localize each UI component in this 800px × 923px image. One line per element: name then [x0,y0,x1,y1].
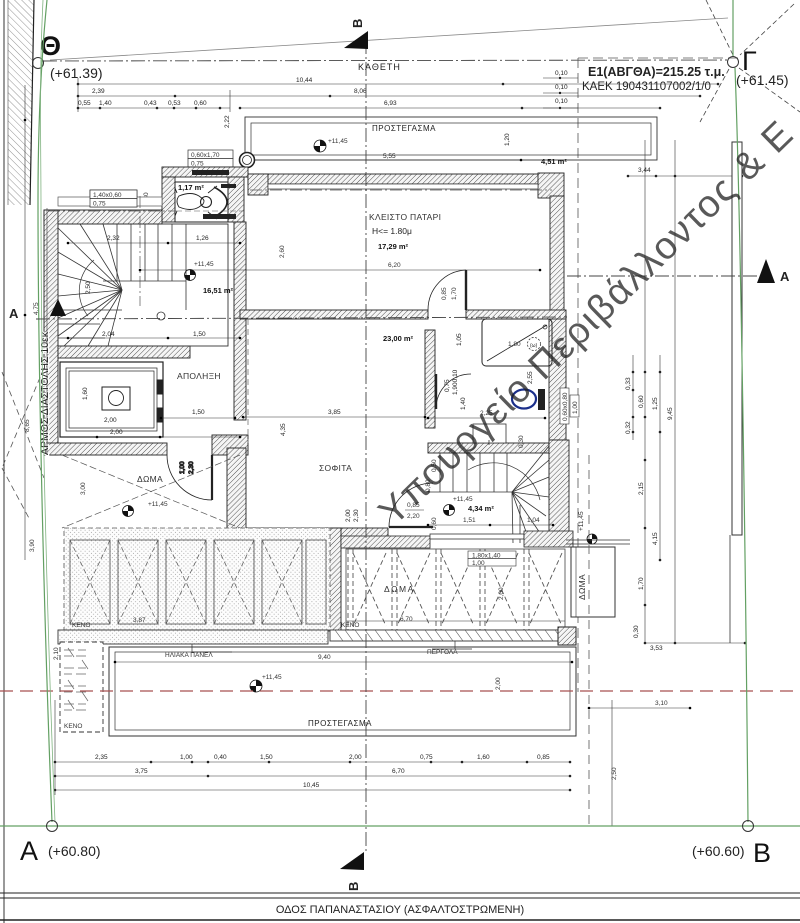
svg-text:0,53: 0,53 [168,100,181,107]
svg-text:0,75: 0,75 [420,754,433,761]
svg-text:1,40x0,60: 1,40x0,60 [93,192,122,199]
svg-text:1,80: 1,80 [508,341,521,348]
svg-text:ΚΕΝΟ: ΚΕΝΟ [72,622,90,629]
svg-text:3,44: 3,44 [638,167,651,174]
svg-text:1,17 m²: 1,17 m² [178,183,204,192]
svg-text:2,15: 2,15 [638,482,645,495]
svg-text:1,50: 1,50 [260,754,273,761]
svg-text:1,900,10: 1,900,10 [452,369,459,395]
svg-text:0,10: 0,10 [555,70,568,77]
svg-text:0,43: 0,43 [144,100,157,107]
svg-text:2,00: 2,00 [104,417,117,424]
svg-text:2,35: 2,35 [95,754,108,761]
svg-text:1,26: 1,26 [196,235,209,242]
svg-text:1,51: 1,51 [463,517,476,524]
svg-text:ΚΕΝΟ: ΚΕΝΟ [341,622,359,629]
svg-text:ΠΕΡΓΟΛΑ: ΠΕΡΓΟΛΑ [427,649,458,656]
svg-text:B: B [346,882,361,891]
svg-text:2,50: 2,50 [611,767,618,780]
svg-text:2,04: 2,04 [102,331,115,338]
svg-text:1,40: 1,40 [99,100,112,107]
svg-text:8,06: 8,06 [354,88,367,95]
svg-text:1,50: 1,50 [193,331,206,338]
svg-text:1,00: 1,00 [572,401,579,414]
svg-text:3,85: 3,85 [328,409,341,416]
svg-text:B: B [753,838,771,868]
svg-text:4,34 m²: 4,34 m² [468,504,494,513]
svg-text:9,45: 9,45 [667,407,674,420]
svg-text:ΔΩΜΑ: ΔΩΜΑ [137,474,163,484]
svg-text:0,60x0,80: 0,60x0,80 [562,392,569,421]
svg-text:10,45: 10,45 [303,782,320,789]
svg-text:1,25: 1,25 [652,397,659,410]
svg-text:4,15: 4,15 [652,532,659,545]
svg-text:0,30: 0,30 [633,625,640,638]
svg-text:0,55: 0,55 [78,100,91,107]
svg-text:A: A [9,306,19,321]
svg-text:ΚΕΝΟ: ΚΕΝΟ [64,723,82,730]
svg-text:ΚΑΕΚ 190431107002/1/0: ΚΑΕΚ 190431107002/1/0 [582,81,711,93]
svg-text:17,29 m²: 17,29 m² [378,242,409,251]
svg-text:1,04: 1,04 [527,517,540,524]
svg-text:0,10: 0,10 [555,98,568,105]
svg-text:A: A [20,836,38,866]
svg-text:5,55: 5,55 [383,153,396,160]
svg-text:2,30: 2,30 [188,461,195,474]
svg-text:+11,45: +11,45 [453,496,473,503]
svg-text:0,33: 0,33 [625,377,632,390]
svg-text:A: A [780,269,790,284]
svg-text:1,80x1,40: 1,80x1,40 [472,553,501,560]
svg-text:ΑΠΟΛΗΞΗ: ΑΠΟΛΗΞΗ [177,371,221,381]
svg-text:0,30: 0,30 [518,435,525,448]
svg-text:+11,45: +11,45 [148,501,168,508]
svg-text:1,40: 1,40 [460,397,467,410]
svg-text:1,70: 1,70 [451,287,458,300]
svg-text:3,53: 3,53 [650,645,663,652]
svg-text:3,90: 3,90 [29,539,36,552]
svg-text:(+60.80): (+60.80) [48,843,101,859]
svg-text:0,85: 0,85 [441,287,448,300]
svg-text:3,75: 3,75 [135,768,148,775]
svg-text:2,39: 2,39 [92,88,105,95]
svg-text:0,40: 0,40 [214,754,227,761]
svg-text:0,10: 0,10 [555,84,568,91]
svg-text:6,93: 6,93 [384,100,397,107]
svg-text:2,22: 2,22 [224,115,231,128]
svg-text:2,30: 2,30 [353,509,360,522]
svg-text:+11,45: +11,45 [328,138,348,145]
svg-text:2,00: 2,00 [345,509,352,522]
svg-text:+11,45: +11,45 [578,511,585,531]
svg-text:10,44: 10,44 [296,77,313,84]
svg-text:ΗΛΙΑΚΑ ΠΑΝΕΛ: ΗΛΙΑΚΑ ΠΑΝΕΛ [165,652,213,659]
svg-text:1,05: 1,05 [456,333,463,346]
svg-text:(+61.45): (+61.45) [736,72,789,88]
svg-text:2,50: 2,50 [85,281,92,294]
svg-text:3,87: 3,87 [133,617,146,624]
svg-text:0,60: 0,60 [194,100,207,107]
svg-text:ΔΩΜΑ: ΔΩΜΑ [577,574,587,600]
svg-text:0,75: 0,75 [93,201,106,208]
svg-text:+11,45: +11,45 [262,674,282,681]
svg-text:B: B [350,19,365,28]
svg-text:16,51 m²: 16,51 m² [203,286,234,295]
svg-text:ΠΡΟΣΤΕΓΑΣΜΑ: ΠΡΟΣΤΕΓΑΣΜΑ [372,124,436,133]
svg-text:(+61.39): (+61.39) [50,65,103,81]
svg-text:2,00: 2,00 [349,754,362,761]
svg-text:ΠΡΟΣΤΕΓΑΣΜΑ: ΠΡΟΣΤΕΓΑΣΜΑ [308,719,372,728]
svg-text:E1(ΑΒΓΘΑ)=215.25 τ.μ.: E1(ΑΒΓΘΑ)=215.25 τ.μ. [588,65,725,79]
svg-text:4,51 m²: 4,51 m² [541,157,567,166]
svg-text:1,20: 1,20 [504,133,511,146]
svg-text:ΣΟΦΙΤΑ: ΣΟΦΙΤΑ [319,463,352,473]
svg-text:ΚΑΘΕΤΗ: ΚΑΘΕΤΗ [358,62,401,72]
svg-text:2,60: 2,60 [279,245,286,258]
svg-text:3,00: 3,00 [80,482,87,495]
svg-text:3,10: 3,10 [655,700,668,707]
svg-text:ΔΩΜΑ: ΔΩΜΑ [384,584,415,594]
svg-text:1,70: 1,70 [638,577,645,590]
svg-text:ΟΔΟΣ ΠΑΠΑΝΑΣΤΑΣΙΟΥ (ΑΣΦΑΛΤΟΣΤΡ: ΟΔΟΣ ΠΑΠΑΝΑΣΤΑΣΙΟΥ (ΑΣΦΑΛΤΟΣΤΡΩΜΕΝΗ) [276,904,524,916]
svg-text:0,60: 0,60 [638,395,645,408]
svg-text:0,60x1,70: 0,60x1,70 [191,152,220,159]
svg-text:2,32: 2,32 [107,235,120,242]
svg-text:1,00: 1,00 [472,560,485,567]
svg-text:ΚΛΕΙΣΤΟ ΠΑΤΑΡΙ: ΚΛΕΙΣΤΟ ΠΑΤΑΡΙ [369,212,441,222]
svg-text:4,35: 4,35 [280,423,287,436]
svg-text:1,60: 1,60 [477,754,490,761]
svg-text:6,70: 6,70 [400,616,413,623]
svg-text:2,10: 2,10 [53,647,60,660]
svg-text:(+60.60): (+60.60) [692,843,745,859]
svg-text:1,50: 1,50 [192,409,205,416]
svg-text:+11,45: +11,45 [194,261,214,268]
svg-text:6,20: 6,20 [388,262,401,269]
svg-text:9,40: 9,40 [318,654,331,661]
svg-text:0,75: 0,75 [191,161,204,168]
svg-text:23,00 m²: 23,00 m² [383,334,414,343]
svg-text:0,32: 0,32 [625,421,632,434]
svg-text:1,60: 1,60 [82,387,89,400]
svg-text:1,00: 1,00 [180,754,193,761]
svg-text:2,00: 2,00 [498,587,505,600]
svg-text:Η<= 1.80μ: Η<= 1.80μ [372,226,412,236]
svg-text:6,70: 6,70 [392,768,405,775]
svg-text:2,00: 2,00 [110,429,123,436]
svg-text:0,85: 0,85 [537,754,550,761]
svg-text:2,00: 2,00 [495,677,502,690]
